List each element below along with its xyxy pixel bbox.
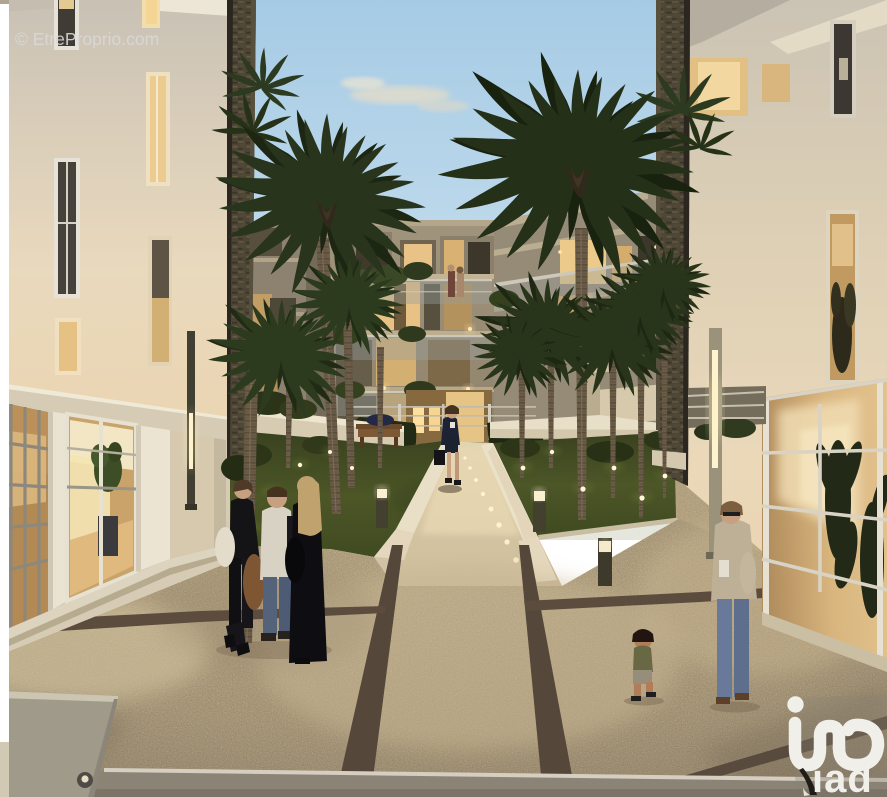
svg-text:© EtreProprio.com: © EtreProprio.com: [15, 29, 159, 49]
svg-text:iad: iad: [812, 757, 873, 797]
